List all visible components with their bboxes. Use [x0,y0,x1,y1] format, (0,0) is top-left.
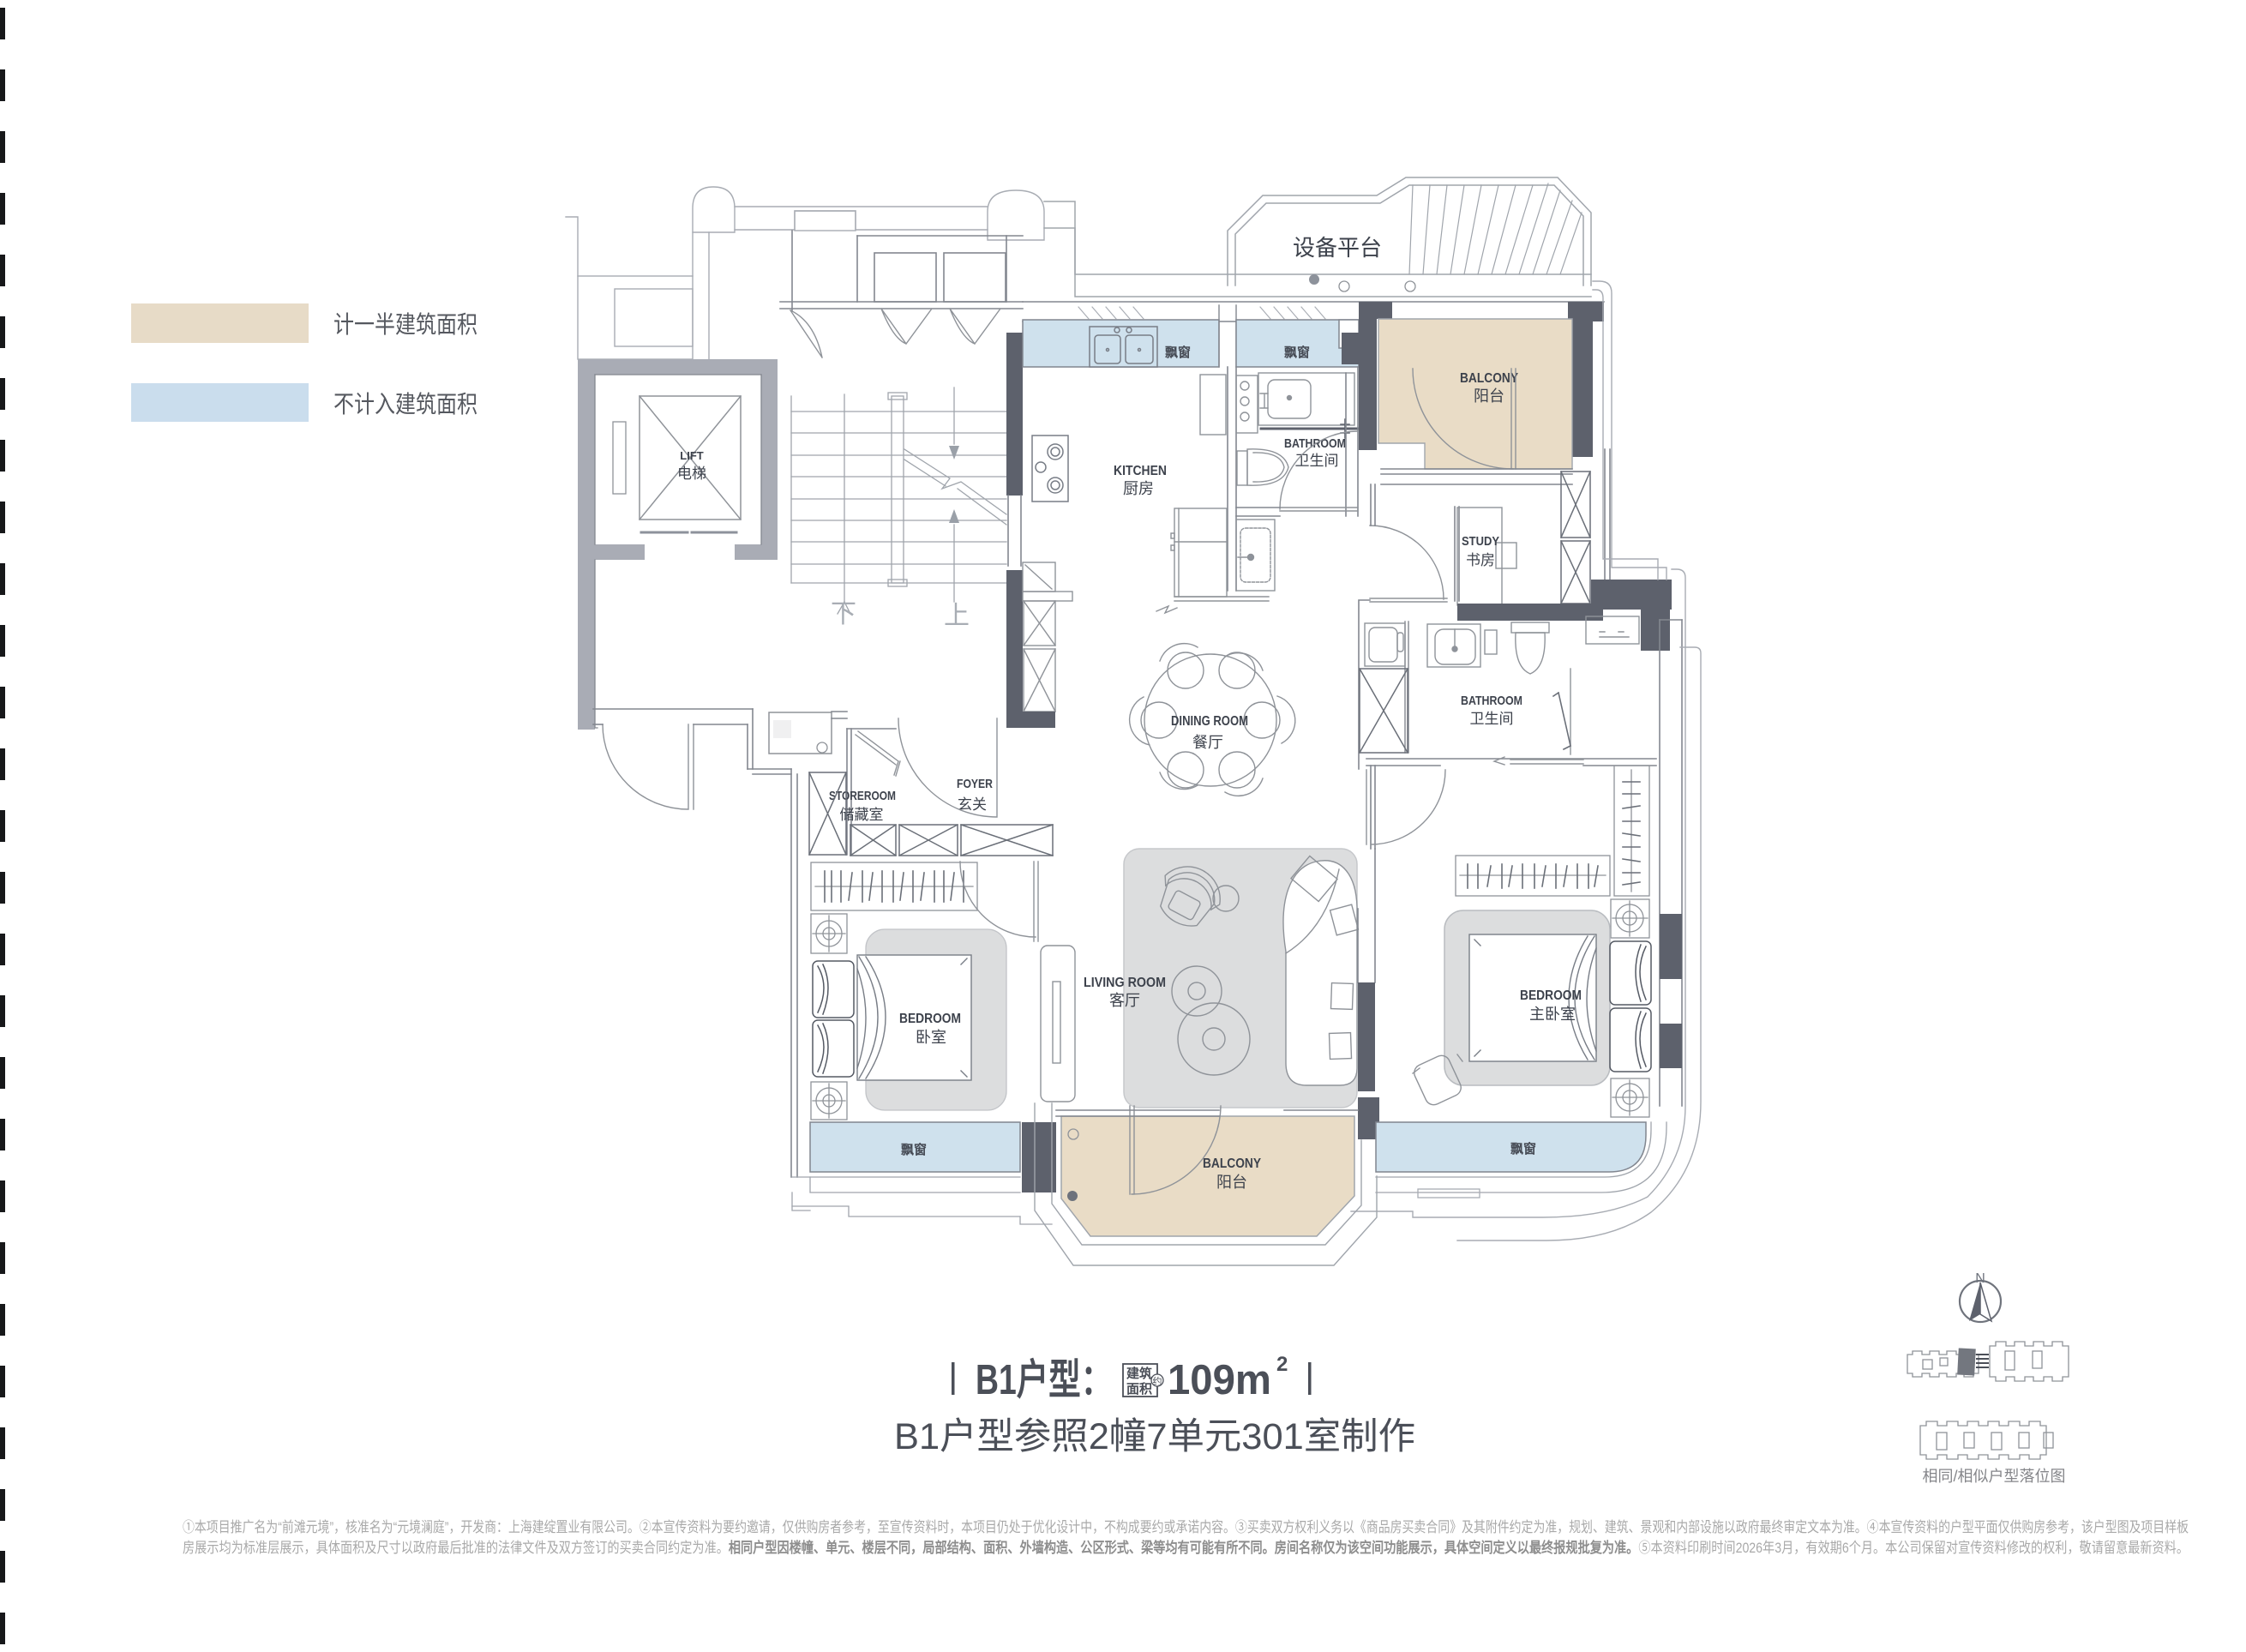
svg-text:BALCONY: BALCONY [1460,371,1518,386]
svg-text:2: 2 [1276,1353,1288,1376]
svg-text:KITCHEN: KITCHEN [1114,464,1167,478]
svg-text:计一半建筑面积: 计一半建筑面积 [333,311,477,338]
svg-text:约: 约 [1153,1376,1162,1387]
svg-text:卫生间: 卫生间 [1470,711,1514,727]
svg-text:餐厅: 餐厅 [1192,734,1223,751]
svg-text:厨房: 厨房 [1123,480,1154,497]
svg-text:STOREROOM: STOREROOM [829,789,896,803]
svg-text:飘窗: 飘窗 [1165,345,1191,360]
svg-text:下: 下 [831,600,856,628]
svg-text:①本项目推广名为“前滩元境”，核准名为“元境澜庭”，开发商：: ①本项目推广名为“前滩元境”，核准名为“元境澜庭”，开发商：上海建绽置业有限公司… [183,1519,2189,1535]
svg-text:电梯: 电梯 [677,466,706,482]
svg-text:设备平台: 设备平台 [1293,235,1382,261]
svg-text:面积: 面积 [1126,1381,1152,1397]
svg-text:书房: 书房 [1466,552,1495,568]
svg-text:飘窗: 飘窗 [1284,345,1310,360]
svg-text:房展示均为标准层展示，具体面积及尺寸以政府最后批准的法律文件: 房展示均为标准层展示，具体面积及尺寸以政府最后批准的法律文件及双方签订的买卖合同… [183,1539,2189,1556]
svg-text:飘窗: 飘窗 [901,1142,927,1157]
svg-text:上: 上 [944,602,970,630]
svg-text:B1户型：: B1户型： [976,1357,1113,1403]
svg-text:LIVING ROOM: LIVING ROOM [1084,976,1166,990]
svg-text:建筑: 建筑 [1126,1366,1152,1381]
svg-text:BEDROOM: BEDROOM [1520,988,1582,1003]
svg-text:BALCONY: BALCONY [1203,1156,1261,1171]
svg-text:BATHROOM: BATHROOM [1461,694,1522,708]
svg-text:飘窗: 飘窗 [1510,1141,1536,1156]
svg-text:卧室: 卧室 [916,1029,946,1046]
svg-text:B1户型参照2幢7单元301室制作: B1户型参照2幢7单元301室制作 [894,1416,1415,1457]
svg-text:FOYER: FOYER [957,777,993,791]
svg-text:阳台: 阳台 [1474,387,1504,405]
svg-text:主卧室: 主卧室 [1529,1006,1576,1023]
svg-text:客厅: 客厅 [1109,992,1140,1009]
svg-text:STUDY: STUDY [1462,534,1499,549]
svg-text:相同/相似户型落位图: 相同/相似户型落位图 [1922,1468,2065,1485]
svg-text:阳台: 阳台 [1216,1174,1247,1191]
svg-text:BEDROOM: BEDROOM [899,1012,961,1026]
svg-text:109m: 109m [1168,1357,1271,1403]
svg-text:LIFT: LIFT [680,449,703,462]
svg-text:不计入建筑面积: 不计入建筑面积 [333,391,477,418]
svg-text:DINING ROOM: DINING ROOM [1171,714,1248,729]
